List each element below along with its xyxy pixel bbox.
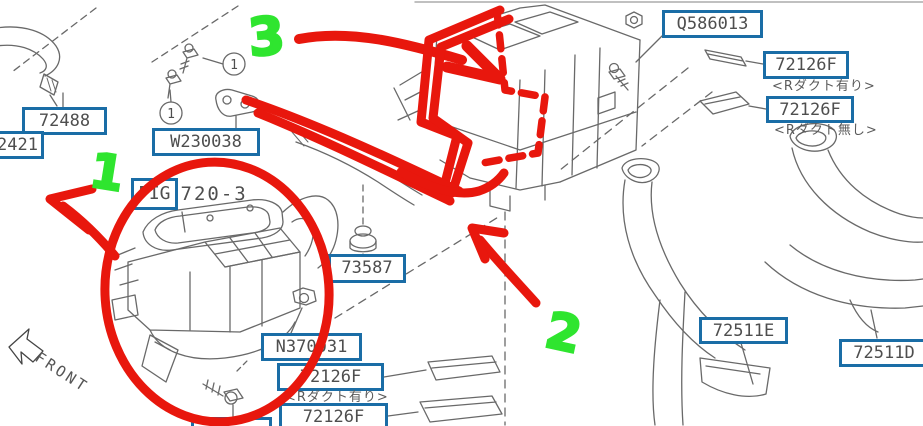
green-number-2: 2 [541,301,587,365]
pen-annotations: 3 1 2 [0,0,923,426]
red-arrow-2-tail [480,240,536,303]
green-pen-annotations: 3 1 2 [86,6,586,365]
parts-diagram-screenshot: 1 1 FRONT 3 1 2 Q586013 72126F <Rダ [0,0,923,426]
red-line-a [246,100,459,191]
green-number-1: 1 [86,143,128,204]
green-number-3: 3 [246,6,287,69]
red-pen-annotations [50,10,545,426]
red-dashed-outline [477,11,545,164]
red-circle-annotation [96,155,338,426]
